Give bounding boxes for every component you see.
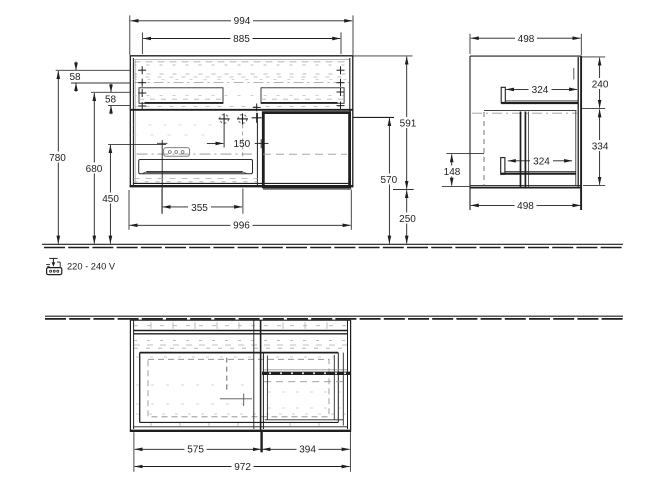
- svg-text:150: 150: [234, 139, 251, 150]
- svg-text:570: 570: [380, 175, 397, 186]
- svg-text:250: 250: [399, 214, 416, 225]
- svg-text:498: 498: [517, 201, 534, 212]
- svg-text:780: 780: [49, 153, 66, 164]
- svg-text:885: 885: [233, 34, 250, 45]
- svg-text:58: 58: [69, 72, 81, 83]
- svg-text:240: 240: [592, 79, 609, 90]
- svg-text:355: 355: [191, 203, 208, 214]
- svg-text:324: 324: [533, 157, 550, 168]
- svg-text:58: 58: [105, 94, 117, 105]
- svg-text:575: 575: [187, 445, 204, 456]
- svg-text:591: 591: [400, 118, 417, 129]
- svg-text:680: 680: [86, 164, 103, 175]
- svg-text:334: 334: [592, 141, 609, 152]
- svg-text:394: 394: [299, 445, 316, 456]
- svg-text:450: 450: [102, 194, 119, 205]
- svg-text:324: 324: [532, 85, 549, 96]
- svg-text:994: 994: [234, 16, 251, 27]
- svg-text:972: 972: [234, 462, 251, 473]
- svg-text:498: 498: [518, 34, 535, 45]
- svg-text:148: 148: [444, 167, 461, 178]
- svg-text:220 - 240 V: 220 - 240 V: [67, 261, 116, 271]
- svg-text:996: 996: [233, 221, 250, 232]
